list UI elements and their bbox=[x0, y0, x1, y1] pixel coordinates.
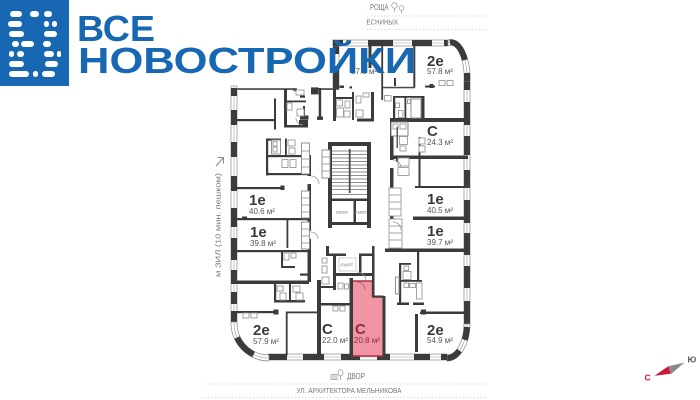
svg-text:ЕСНИНЫХ: ЕСНИНЫХ bbox=[367, 18, 399, 27]
svg-text:Ю: Ю bbox=[688, 355, 697, 365]
svg-text:УЛ. АРХИТЕКТОРА МЕЛЬНИКОВА: УЛ. АРХИТЕКТОРА МЕЛЬНИКОВА bbox=[297, 386, 403, 395]
svg-text:НОВОСТРОЙКИ: НОВОСТРОЙКИ bbox=[78, 39, 416, 81]
svg-text:ЛИФТ: ЛИФТ bbox=[336, 210, 349, 216]
svg-text:20.8 м²: 20.8 м² bbox=[354, 336, 380, 345]
svg-text:57.8 м²: 57.8 м² bbox=[427, 67, 453, 76]
svg-text:40.6 м²: 40.6 м² bbox=[249, 207, 275, 216]
svg-text:РОЩА: РОЩА bbox=[370, 3, 389, 12]
svg-text:57.9 м²: 57.9 м² bbox=[253, 337, 279, 346]
svg-text:ДВОР: ДВОР bbox=[347, 372, 365, 381]
svg-text:С: С bbox=[645, 373, 651, 383]
svg-text:24.3 м²: 24.3 м² bbox=[427, 138, 453, 147]
svg-text:39.8 м²: 39.8 м² bbox=[250, 239, 276, 248]
svg-text:54.9 м²: 54.9 м² bbox=[427, 336, 453, 345]
svg-text:40.5 м²: 40.5 м² bbox=[427, 206, 453, 215]
svg-text:ЛИФТ: ЛИФТ bbox=[341, 263, 354, 269]
svg-text:м ЗИЛ (10 мин. пешком): м ЗИЛ (10 мин. пешком) bbox=[214, 172, 223, 277]
svg-text:39.7 м²: 39.7 м² bbox=[427, 238, 453, 247]
svg-text:22.0 м²: 22.0 м² bbox=[322, 336, 348, 345]
svg-text:ЛИФТ: ЛИФТ bbox=[355, 210, 368, 216]
